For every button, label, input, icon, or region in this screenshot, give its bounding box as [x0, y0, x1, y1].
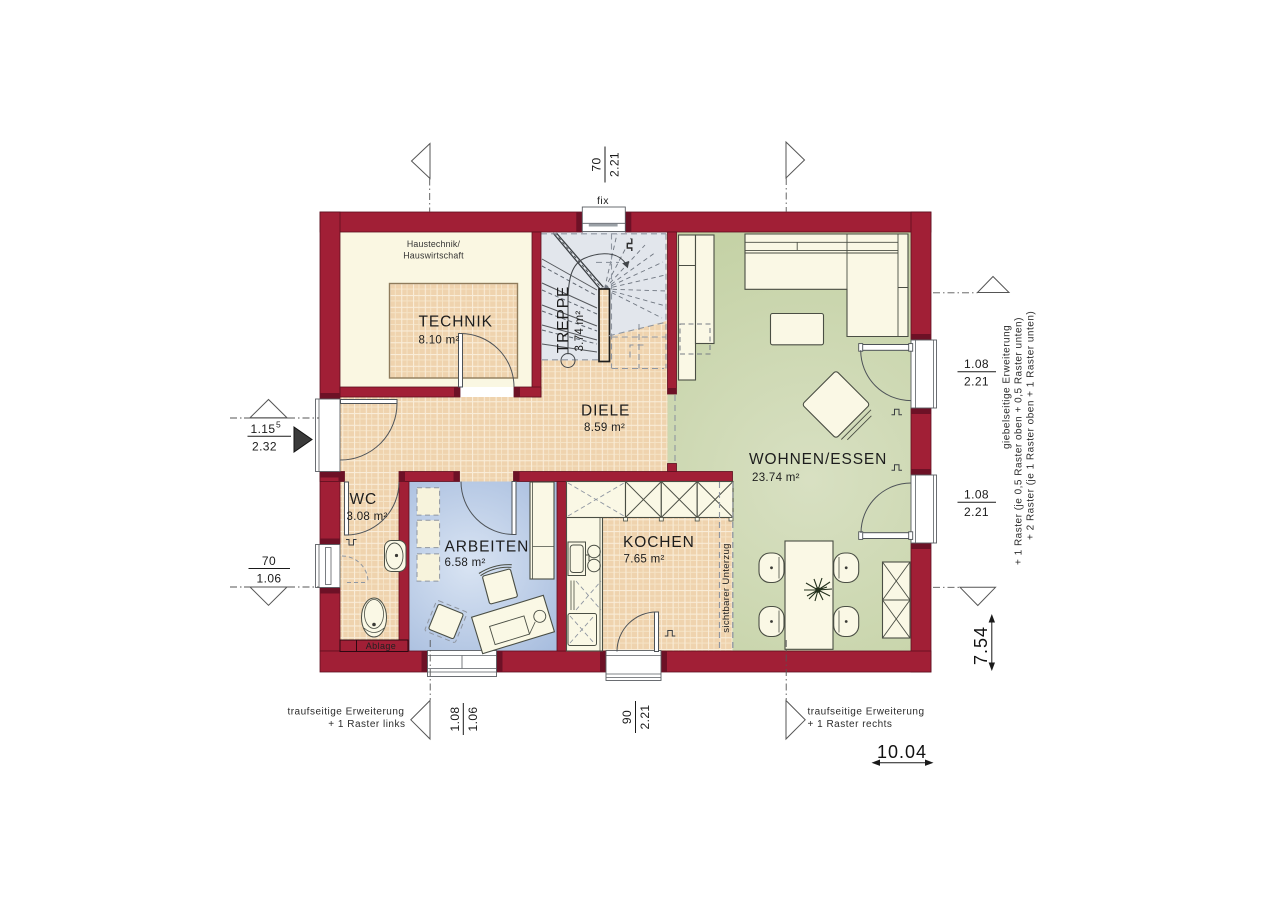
svg-text:2.32: 2.32	[252, 440, 277, 454]
svg-text:6.58 m²: 6.58 m²	[445, 557, 486, 569]
svg-text:+ 1 Raster rechts: + 1 Raster rechts	[808, 719, 893, 730]
svg-text:WOHNEN/ESSEN: WOHNEN/ESSEN	[749, 451, 887, 468]
svg-text:90: 90	[620, 710, 634, 724]
svg-text:2.21: 2.21	[964, 505, 989, 519]
svg-text:ARBEITEN: ARBEITEN	[445, 539, 530, 556]
svg-text:8.59 m²: 8.59 m²	[584, 422, 625, 434]
svg-text:1.06: 1.06	[257, 572, 282, 586]
svg-text:traufseitige Erweiterung: traufseitige Erweiterung	[287, 707, 404, 718]
svg-text:DIELE: DIELE	[581, 403, 630, 420]
svg-text:TREPPE: TREPPE	[555, 286, 572, 353]
svg-text:2.21: 2.21	[638, 705, 652, 730]
svg-text:3.08 m²: 3.08 m²	[347, 511, 388, 523]
svg-text:traufseitige Erweiterung: traufseitige Erweiterung	[808, 707, 925, 718]
svg-text:+ 2 Raster (je 1 Raster oben +: + 2 Raster (je 1 Raster oben + 1 Raster …	[1026, 311, 1037, 540]
svg-text:5: 5	[276, 420, 281, 430]
svg-text:2.21: 2.21	[964, 375, 989, 389]
svg-text:KOCHEN: KOCHEN	[623, 534, 695, 551]
svg-text:3.74 m²: 3.74 m²	[574, 310, 586, 351]
svg-text:WC: WC	[350, 491, 378, 508]
svg-text:Haustechnik/: Haustechnik/	[407, 239, 461, 249]
svg-text:1.08: 1.08	[964, 357, 989, 371]
svg-text:7.54: 7.54	[971, 626, 991, 665]
svg-text:10.04: 10.04	[877, 742, 927, 762]
svg-text:1.08: 1.08	[964, 488, 989, 502]
svg-text:70: 70	[590, 157, 604, 171]
svg-text:1.08: 1.08	[448, 707, 462, 732]
svg-text:fix: fix	[597, 195, 609, 207]
svg-text:giebelseitige Erweiterung: giebelseitige Erweiterung	[1002, 325, 1013, 449]
svg-text:Ablage: Ablage	[366, 641, 396, 651]
svg-text:+ 1 Raster (je 0,5 Raster oben: + 1 Raster (je 0,5 Raster oben + 0,5 Ras…	[1014, 317, 1025, 565]
svg-text:1.15: 1.15	[251, 422, 276, 436]
svg-text:23.74 m²: 23.74 m²	[752, 472, 800, 484]
svg-text:1.06: 1.06	[466, 707, 480, 732]
svg-text:7.65 m²: 7.65 m²	[624, 554, 665, 566]
svg-text:70: 70	[262, 554, 276, 568]
svg-text:Hauswirtschaft: Hauswirtschaft	[403, 251, 464, 261]
svg-text:8.10 m²: 8.10 m²	[419, 335, 460, 347]
svg-text:sichtbarer Unterzug: sichtbarer Unterzug	[721, 543, 732, 632]
svg-text:+ 1 Raster links: + 1 Raster links	[328, 719, 405, 730]
svg-text:2.21: 2.21	[608, 152, 622, 177]
svg-text:TECHNIK: TECHNIK	[419, 314, 493, 331]
